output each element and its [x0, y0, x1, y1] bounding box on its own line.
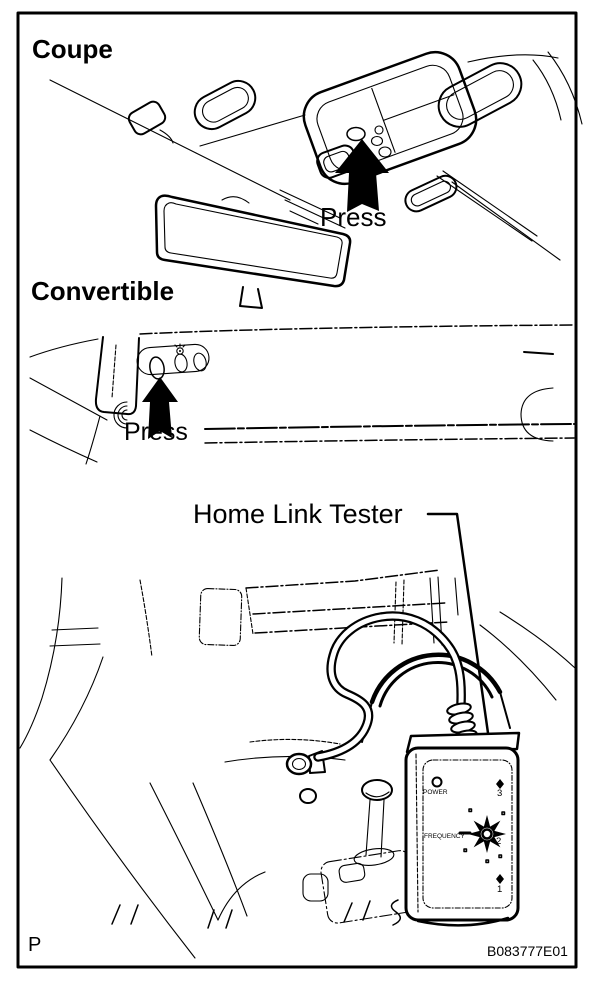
console-button-3 [379, 147, 391, 157]
dome-lamp [402, 172, 460, 215]
grab-handle-left [189, 75, 261, 135]
channel-3-label: 3 [497, 788, 502, 799]
cluster-button-2 [174, 353, 189, 373]
press-label-convertible: Press [124, 418, 188, 446]
cluster-button-3 [192, 352, 208, 372]
homelink-button-cluster [136, 344, 210, 381]
tester-callout-label: Home Link Tester [193, 499, 403, 529]
manual-figure-page: Coupe Press Convertible Press Home Link … [0, 0, 608, 988]
dashboard-illustration [20, 514, 575, 958]
channel-2-label: 2 [496, 836, 501, 847]
homelink-tester-device [406, 733, 519, 925]
figure-id: B083777E01 [487, 943, 568, 959]
coupe-section-label: Coupe [32, 34, 113, 64]
figure-line-art: Coupe Press Convertible Press Home Link … [0, 0, 608, 988]
shift-gate [320, 849, 419, 924]
gear-shifter [303, 780, 418, 925]
frequency-label: FREQUENCY [424, 833, 465, 840]
mirror-stem [240, 287, 262, 308]
grab-handle-right [431, 56, 528, 134]
page-marker: P [28, 934, 41, 956]
center-vent [199, 588, 242, 645]
convertible-illustration [30, 325, 574, 464]
homelink-button-pressed [148, 356, 166, 380]
homelink-button-pressed [347, 128, 365, 141]
console-button-2 [372, 137, 383, 146]
power-label: POWER [423, 789, 448, 796]
console-pocket [303, 874, 328, 901]
console-button-small [375, 126, 383, 134]
convertible-section-label: Convertible [31, 276, 174, 306]
panel-knob [300, 789, 316, 803]
press-label-coupe: Press [320, 202, 386, 232]
channel-1-label: 1 [497, 884, 502, 895]
